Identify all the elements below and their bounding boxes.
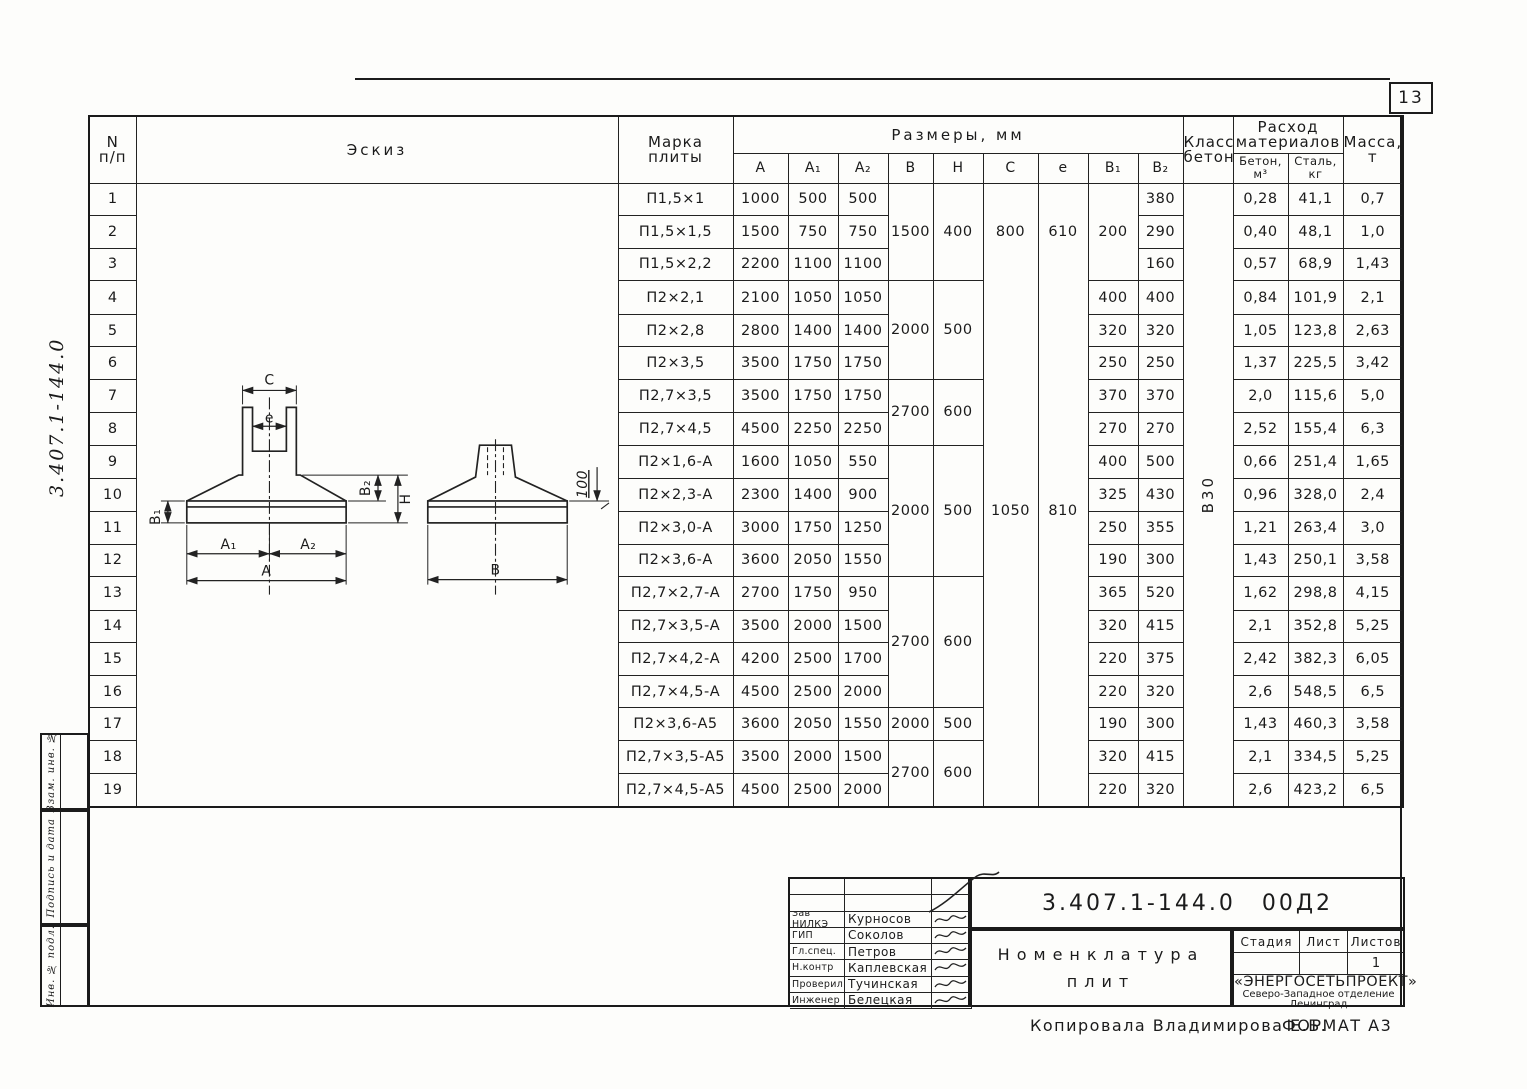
cell: 2250 [838, 413, 888, 446]
cell: 1750 [788, 379, 838, 412]
org-city: Ленинград [1234, 1000, 1403, 1010]
cell: 290 [1138, 216, 1183, 249]
cell-e [1038, 577, 1088, 807]
cell-h: 500 [933, 708, 983, 741]
col-e: e [1038, 153, 1088, 183]
cell: 3600 [733, 544, 788, 577]
cell-b1: 320 [1088, 740, 1138, 773]
cell-b1: 190 [1088, 544, 1138, 577]
plate-mark: П2,7×3,5 [618, 379, 733, 412]
cell: 2500 [788, 675, 838, 708]
plate-mark: П2,7×2,7-А [618, 577, 733, 610]
cell: 1500 [838, 610, 888, 643]
sign-name: Белецкая [845, 993, 932, 1009]
plate-mark: П1,5×1 [618, 183, 733, 216]
cell-b1: 365 [1088, 577, 1138, 610]
cell: 370 [1138, 379, 1183, 412]
dim-label-B1: B₁ [148, 508, 164, 524]
cell-b1: 220 [1088, 643, 1138, 676]
cell: 900 [838, 479, 888, 512]
sheet-value [1300, 953, 1348, 975]
row-number: 19 [89, 774, 136, 807]
row-number: 5 [89, 314, 136, 347]
cell: 300 [1138, 708, 1183, 741]
cell: 1,43 [1233, 544, 1288, 577]
cell: 1050 [838, 281, 888, 314]
cell: 382,3 [1288, 643, 1343, 676]
row-number: 14 [89, 610, 136, 643]
sign-role: Н.контр [790, 960, 845, 976]
plate-mark: П2×3,6-А5 [618, 708, 733, 741]
cell-b1: 320 [1088, 314, 1138, 347]
cell-b1: 220 [1088, 675, 1138, 708]
row-number: 17 [89, 708, 136, 741]
col-H: H [933, 153, 983, 183]
cell-h: 400 [933, 183, 983, 281]
cell: 2000 [788, 740, 838, 773]
cell: 41,1 [1288, 183, 1343, 216]
row-number: 11 [89, 511, 136, 544]
cell-h: 600 [933, 740, 983, 806]
cell: 334,5 [1288, 740, 1343, 773]
stage-block: Стадия Лист Листов 1 «ЭНЕРГОСЕТЬПРОЕКТ» … [1232, 929, 1405, 1007]
cell-c [983, 577, 1038, 807]
cell-b1: 250 [1088, 347, 1138, 380]
col-B: B [888, 153, 933, 183]
cell: 5,25 [1343, 740, 1403, 773]
margin-box-vzam: Взам. инв. № [40, 733, 89, 810]
cell-b1: 320 [1088, 610, 1138, 643]
sign-cell [932, 944, 972, 960]
cell: 750 [838, 216, 888, 249]
cell: 320 [1138, 774, 1183, 807]
cell: 250,1 [1288, 544, 1343, 577]
dim-label-H: H [398, 493, 414, 504]
cell-b1: 270 [1088, 413, 1138, 446]
cell: 2700 [733, 577, 788, 610]
cell-b: 2700 [888, 577, 933, 708]
doc-number: 3.407.1-144.0 00Д2 [1042, 891, 1333, 916]
cell-c [983, 281, 1038, 446]
cell: 1550 [838, 544, 888, 577]
cell: 0,66 [1233, 445, 1288, 478]
sign-cell [932, 928, 972, 944]
sign-name: Соколов [845, 928, 932, 944]
drawing-title-line1: Номенклатура [972, 941, 1230, 968]
cell: 123,8 [1288, 314, 1343, 347]
cell-h: 600 [933, 379, 983, 445]
cell-b1: 190 [1088, 708, 1138, 741]
cell: 1600 [733, 445, 788, 478]
plate-mark: П2×1,6-А [618, 445, 733, 478]
cell: 6,5 [1343, 675, 1403, 708]
cell-b: 2700 [888, 379, 933, 445]
margin-box-inv-label: Инв. № подл. [46, 925, 57, 1007]
cell: 0,96 [1233, 479, 1288, 512]
col-sketch: Эскиз [136, 116, 618, 183]
sign-name: Каплевская [845, 960, 932, 976]
row-number: 15 [89, 643, 136, 676]
drawing-title-box: Номенклатура плит [970, 929, 1232, 1007]
cell: 2000 [788, 610, 838, 643]
cell: 328,0 [1288, 479, 1343, 512]
cell: 3500 [733, 740, 788, 773]
cell: 3500 [733, 610, 788, 643]
cell: 155,4 [1288, 413, 1343, 446]
drawing-title-line2: плит [972, 968, 1230, 995]
cell: 460,3 [1288, 708, 1343, 741]
plate-mark: П2×3,5 [618, 347, 733, 380]
signature-scribble [934, 945, 968, 958]
cell: 251,4 [1288, 445, 1343, 478]
cell-e: 810 [1038, 445, 1088, 576]
plate-mark: П2,7×4,5-А5 [618, 774, 733, 807]
sign-cell [932, 960, 972, 976]
cell: 2100 [733, 281, 788, 314]
cell: 320 [1138, 314, 1183, 347]
cell: 352,8 [1288, 610, 1343, 643]
concrete-class-value: В30 [1199, 475, 1217, 513]
cell: 750 [788, 216, 838, 249]
cell: 1500 [838, 740, 888, 773]
cell: 520 [1138, 577, 1183, 610]
row-number: 18 [89, 740, 136, 773]
cell: 160 [1138, 248, 1183, 281]
cell: 1500 [733, 216, 788, 249]
cell: 2500 [788, 643, 838, 676]
cell: 300 [1138, 544, 1183, 577]
plate-mark: П2×2,3-А [618, 479, 733, 512]
cell: 2,1 [1233, 610, 1288, 643]
signature-scribble [934, 994, 968, 1007]
page-number-box: 13 [1389, 82, 1433, 114]
cell: 2,4 [1343, 479, 1403, 512]
cell-b: 2000 [888, 281, 933, 380]
cell: 1100 [788, 248, 838, 281]
cell-h: 500 [933, 445, 983, 576]
cell: 2000 [838, 675, 888, 708]
cell: 430 [1138, 479, 1183, 512]
row-number: 1 [89, 183, 136, 216]
cell: 1750 [838, 379, 888, 412]
sheets-label: Листов [1348, 931, 1404, 953]
sheets-value: 1 [1348, 953, 1404, 975]
cell: 4,15 [1343, 577, 1403, 610]
row-number: 16 [89, 675, 136, 708]
cell: 500 [1138, 445, 1183, 478]
cell: 3,0 [1343, 511, 1403, 544]
cell: 0,84 [1233, 281, 1288, 314]
sign-name: Тучинская [845, 977, 932, 993]
cell: 1,37 [1233, 347, 1288, 380]
cell: 2,0 [1233, 379, 1288, 412]
cell-b: 2700 [888, 740, 933, 806]
col-concrete: Бетон, м³ [1233, 153, 1288, 183]
cell: 0,28 [1233, 183, 1288, 216]
cell: 1,0 [1343, 216, 1403, 249]
cell: 6,3 [1343, 413, 1403, 446]
cell: 2,1 [1343, 281, 1403, 314]
cell: 2,52 [1233, 413, 1288, 446]
cell: 415 [1138, 610, 1183, 643]
cell: 2,42 [1233, 643, 1288, 676]
col-steel: Сталь, кг [1288, 153, 1343, 183]
cell: 355 [1138, 511, 1183, 544]
plate-mark: П1,5×2,2 [618, 248, 733, 281]
cell: 1,43 [1343, 248, 1403, 281]
concrete-class-cell: В30 [1183, 183, 1233, 807]
cell: 550 [838, 445, 888, 478]
cell: 375 [1138, 643, 1183, 676]
cell-b1: 250 [1088, 511, 1138, 544]
cell: 1100 [838, 248, 888, 281]
dim-label-C: C [264, 372, 274, 388]
cell-b1: 325 [1088, 479, 1138, 512]
cell-h: 600 [933, 577, 983, 708]
row-number: 13 [89, 577, 136, 610]
cell: 423,2 [1288, 774, 1343, 807]
margin-box-inv: Инв. № подл. [40, 925, 89, 1007]
row-number: 7 [89, 379, 136, 412]
row-number: 6 [89, 347, 136, 380]
cell: 3000 [733, 511, 788, 544]
cell-h: 500 [933, 281, 983, 380]
cell: 2500 [788, 774, 838, 807]
cell: 48,1 [1288, 216, 1343, 249]
cell: 270 [1138, 413, 1183, 446]
cell-b: 1500 [888, 183, 933, 281]
cell: 1750 [788, 577, 838, 610]
cell-b1: 400 [1088, 445, 1138, 478]
sign-role: Инженер [790, 993, 845, 1009]
cell-b1: 200 [1088, 183, 1138, 281]
cell: 2000 [838, 774, 888, 807]
sign-role: Гл.спец. [790, 944, 845, 960]
signature-flourish [925, 868, 1005, 916]
stage-label: Стадия [1234, 931, 1300, 953]
cell: 2200 [733, 248, 788, 281]
dim-label-A: A [261, 563, 271, 579]
cell: 2,63 [1343, 314, 1403, 347]
cell-c: 800 [983, 183, 1038, 281]
cell-b: 2000 [888, 708, 933, 741]
plate-mark: П2×3,6-А [618, 544, 733, 577]
cell: 250 [1138, 347, 1183, 380]
cell: 1050 [788, 445, 838, 478]
cell: 0,57 [1233, 248, 1288, 281]
col-mass: Масса, т [1343, 116, 1403, 183]
cell: 2800 [733, 314, 788, 347]
cell-b: 2000 [888, 445, 933, 576]
sign-name: Петров [845, 944, 932, 960]
cell: 1,43 [1233, 708, 1288, 741]
cell: 950 [838, 577, 888, 610]
cell: 3,58 [1343, 708, 1403, 741]
cell: 2050 [788, 544, 838, 577]
cell: 1,21 [1233, 511, 1288, 544]
col-B2: B₂ [1138, 153, 1183, 183]
cell: 263,4 [1288, 511, 1343, 544]
cell: 500 [788, 183, 838, 216]
row-number: 12 [89, 544, 136, 577]
row-number: 4 [89, 281, 136, 314]
cell-b1: 370 [1088, 379, 1138, 412]
dim-label-A1: A₁ [221, 536, 237, 552]
cell: 4500 [733, 675, 788, 708]
cell: 2300 [733, 479, 788, 512]
dim-label-B2: B₂ [358, 479, 374, 495]
col-concrete-class: Класс бетона [1183, 116, 1233, 183]
cell: 1700 [838, 643, 888, 676]
dim-label-100: 100 [575, 469, 591, 497]
cell: 500 [838, 183, 888, 216]
cell-b1: 400 [1088, 281, 1138, 314]
col-A: A [733, 153, 788, 183]
margin-box-podpis-label: Подпись и дата [46, 818, 57, 918]
cell: 1400 [838, 314, 888, 347]
nomenclature-table: N п/п Эскиз Марка плиты Размеры, мм Клас… [88, 115, 1404, 808]
cell: 225,5 [1288, 347, 1343, 380]
cell: 1550 [838, 708, 888, 741]
cell: 0,7 [1343, 183, 1403, 216]
cell: 1750 [838, 347, 888, 380]
cell-e [1038, 281, 1088, 446]
cell: 4500 [733, 413, 788, 446]
sheet-label: Лист [1300, 931, 1348, 953]
row-number: 8 [89, 413, 136, 446]
sign-role: Зав НИЛКЭ [790, 912, 845, 928]
plate-mark: П1,5×1,5 [618, 216, 733, 249]
margin-box-podpis: Подпись и дата [40, 810, 89, 925]
cell: 6,05 [1343, 643, 1403, 676]
cell-b1: 220 [1088, 774, 1138, 807]
cell: 1750 [788, 511, 838, 544]
col-B1: B₁ [1088, 153, 1138, 183]
table-row: 1 [89, 183, 1403, 216]
cell: 380 [1138, 183, 1183, 216]
cell: 3600 [733, 708, 788, 741]
cell-c: 1050 [983, 445, 1038, 576]
cell: 5,25 [1343, 610, 1403, 643]
doc-number-box: 3.407.1-144.0 00Д2 [970, 877, 1405, 929]
row-number: 2 [89, 216, 136, 249]
margin-box-vzam-label: Взам. инв. № [46, 731, 57, 813]
col-C: C [983, 153, 1038, 183]
col-materials: Расход материалов [1233, 116, 1343, 153]
cell: 1750 [788, 347, 838, 380]
cell: 3,58 [1343, 544, 1403, 577]
sign-name: Курносов [845, 912, 932, 928]
header-row-1: N п/п Эскиз Марка плиты Размеры, мм Клас… [89, 116, 1403, 153]
cell: 3500 [733, 379, 788, 412]
cell-e: 610 [1038, 183, 1088, 281]
sign-cell [932, 977, 972, 993]
cell: 1,65 [1343, 445, 1403, 478]
cell: 4500 [733, 774, 788, 807]
cell: 1050 [788, 281, 838, 314]
cell: 1400 [788, 314, 838, 347]
row-number: 9 [89, 445, 136, 478]
cell: 3500 [733, 347, 788, 380]
cell: 415 [1138, 740, 1183, 773]
plate-mark: П2,7×4,5-А [618, 675, 733, 708]
plate-mark: П2,7×4,5 [618, 413, 733, 446]
cell: 298,8 [1288, 577, 1343, 610]
plate-mark: П2×2,1 [618, 281, 733, 314]
cell: 4200 [733, 643, 788, 676]
plate-mark: П2,7×3,5-А5 [618, 740, 733, 773]
dim-label-A2: A₂ [300, 536, 316, 552]
cell: 68,9 [1288, 248, 1343, 281]
sign-cell [932, 993, 972, 1009]
format-label: ФОРМАТ А3 [1282, 1016, 1392, 1035]
sketch-cell: C e A₁ A₂ A B B₁ B₂ H 100 [136, 183, 618, 807]
cell: 2050 [788, 708, 838, 741]
cell: 1000 [733, 183, 788, 216]
cell: 2,6 [1233, 774, 1288, 807]
plate-mark: П2,7×4,2-А [618, 643, 733, 676]
plate-sketch: C e A₁ A₂ A B B₁ B₂ H 100 [137, 184, 617, 802]
page-number: 13 [1398, 88, 1424, 108]
sheet-top-rule [355, 78, 1390, 80]
col-A2: A₂ [838, 153, 888, 183]
cell: 2,1 [1233, 740, 1288, 773]
col-num: N п/п [89, 116, 136, 183]
cell: 6,5 [1343, 774, 1403, 807]
sign-role: ГИП [790, 928, 845, 944]
plate-mark: П2×3,0-А [618, 511, 733, 544]
cell: 400 [1138, 281, 1183, 314]
cell: 115,6 [1288, 379, 1343, 412]
signature-scribble [934, 929, 968, 942]
row-number: 3 [89, 248, 136, 281]
cell: 1250 [838, 511, 888, 544]
stage-value [1234, 953, 1300, 975]
cell: 1,05 [1233, 314, 1288, 347]
col-sizes: Размеры, мм [733, 116, 1183, 153]
cell: 101,9 [1288, 281, 1343, 314]
cell: 1400 [788, 479, 838, 512]
plate-mark: П2,7×3,5-А [618, 610, 733, 643]
cell: 320 [1138, 675, 1183, 708]
col-mark: Марка плиты [618, 116, 733, 183]
cell: 5,0 [1343, 379, 1403, 412]
col-A1: A₁ [788, 153, 838, 183]
sign-role: Проверил [790, 977, 845, 993]
signature-scribble [934, 961, 968, 974]
drawing-sheet: 13 3.407.1-144.0 Взам. инв. № Подпись и … [0, 0, 1527, 1089]
cell: 2,6 [1233, 675, 1288, 708]
cell: 0,40 [1233, 216, 1288, 249]
cell: 3,42 [1343, 347, 1403, 380]
org-name: «ЭНЕРГОСЕТЬПРОЕКТ» [1234, 975, 1403, 990]
dim-label-e: e [265, 410, 274, 426]
margin-doc-number: 3.407.1-144.0 [46, 367, 68, 497]
cell: 2250 [788, 413, 838, 446]
cell: 1,62 [1233, 577, 1288, 610]
signature-scribble [934, 978, 968, 991]
dim-label-B: B [490, 562, 500, 578]
cell: 548,5 [1288, 675, 1343, 708]
row-number: 10 [89, 479, 136, 512]
plate-mark: П2×2,8 [618, 314, 733, 347]
